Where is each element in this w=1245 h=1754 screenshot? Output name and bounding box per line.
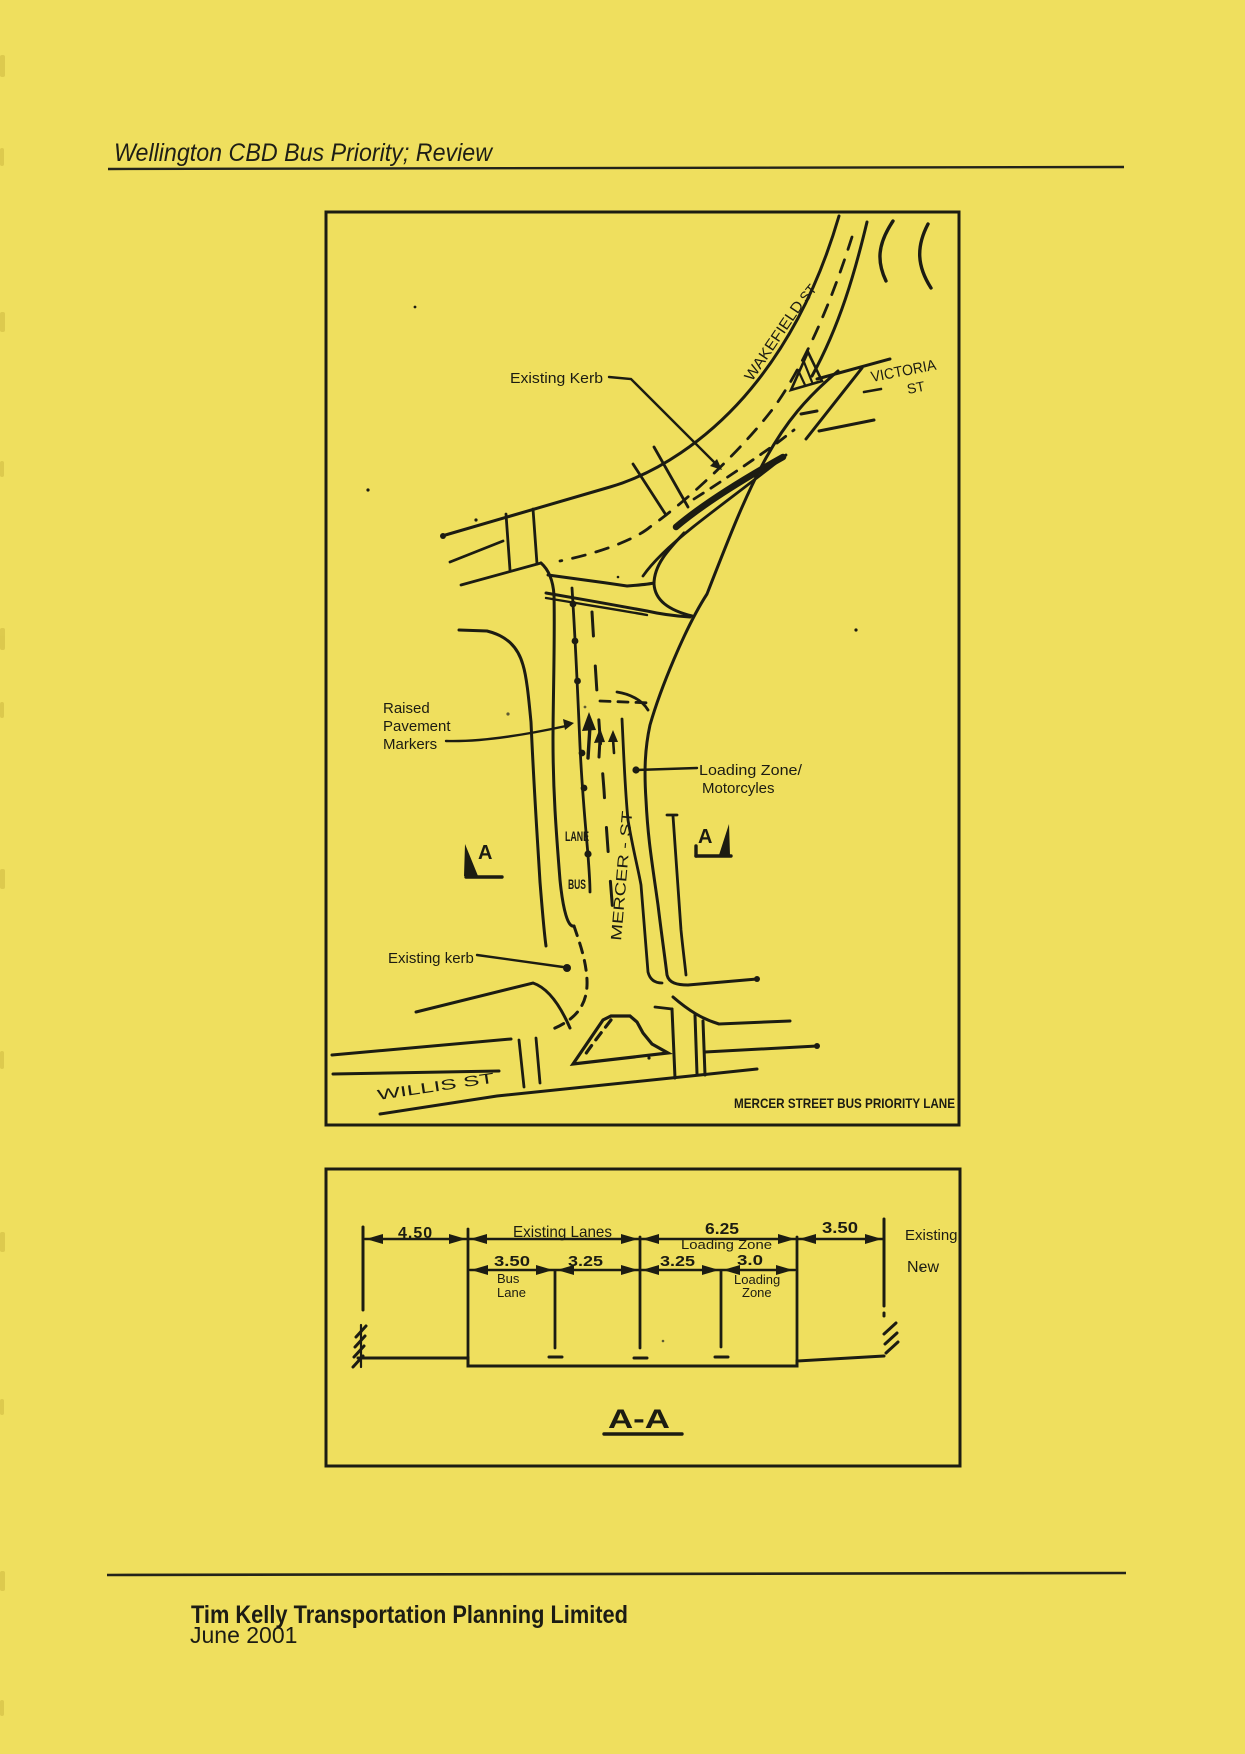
svg-text:A: A	[698, 826, 712, 848]
svg-text:Loading Zone: Loading Zone	[681, 1237, 772, 1252]
svg-text:June 2001: June 2001	[190, 1622, 297, 1648]
svg-text:3.25: 3.25	[660, 1253, 695, 1270]
svg-text:A: A	[478, 842, 492, 864]
svg-text:Zone: Zone	[742, 1285, 772, 1300]
svg-text:3.0: 3.0	[737, 1252, 763, 1269]
svg-text:New: New	[907, 1259, 939, 1276]
svg-text:3.50: 3.50	[822, 1220, 858, 1237]
svg-text:BUS: BUS	[568, 876, 586, 892]
svg-text:Existing kerb: Existing kerb	[388, 950, 474, 967]
svg-text:3.50: 3.50	[494, 1253, 530, 1270]
svg-text:Existing Kerb: Existing Kerb	[510, 370, 603, 387]
svg-text:Raised: Raised	[383, 700, 430, 717]
svg-text:Lane: Lane	[497, 1285, 526, 1300]
svg-text:Existing Lanes: Existing Lanes	[513, 1224, 612, 1241]
svg-text:4.50: 4.50	[398, 1225, 433, 1242]
svg-text:MERCER - ST: MERCER - ST	[608, 810, 636, 941]
svg-text:LANE: LANE	[565, 828, 589, 844]
svg-text:ST: ST	[796, 281, 820, 305]
svg-text:Wellington CBD Bus Priority; R: Wellington CBD Bus Priority; Review	[114, 139, 494, 167]
svg-text:Markers: Markers	[383, 736, 437, 753]
svg-text:Motorcyles: Motorcyles	[702, 780, 775, 797]
svg-text:Bus: Bus	[497, 1271, 520, 1286]
svg-text:Loading Zone/: Loading Zone/	[699, 762, 803, 779]
svg-text:Existing: Existing	[905, 1227, 958, 1244]
svg-text:6.25: 6.25	[705, 1221, 739, 1238]
svg-text:3.25: 3.25	[568, 1253, 603, 1270]
svg-text:MERCER STREET BUS PRIORITY LAN: MERCER STREET BUS PRIORITY LANE	[734, 1095, 955, 1111]
svg-text:A-A: A-A	[608, 1404, 670, 1434]
svg-text:Pavement: Pavement	[383, 718, 451, 735]
svg-text:ST: ST	[906, 378, 927, 397]
